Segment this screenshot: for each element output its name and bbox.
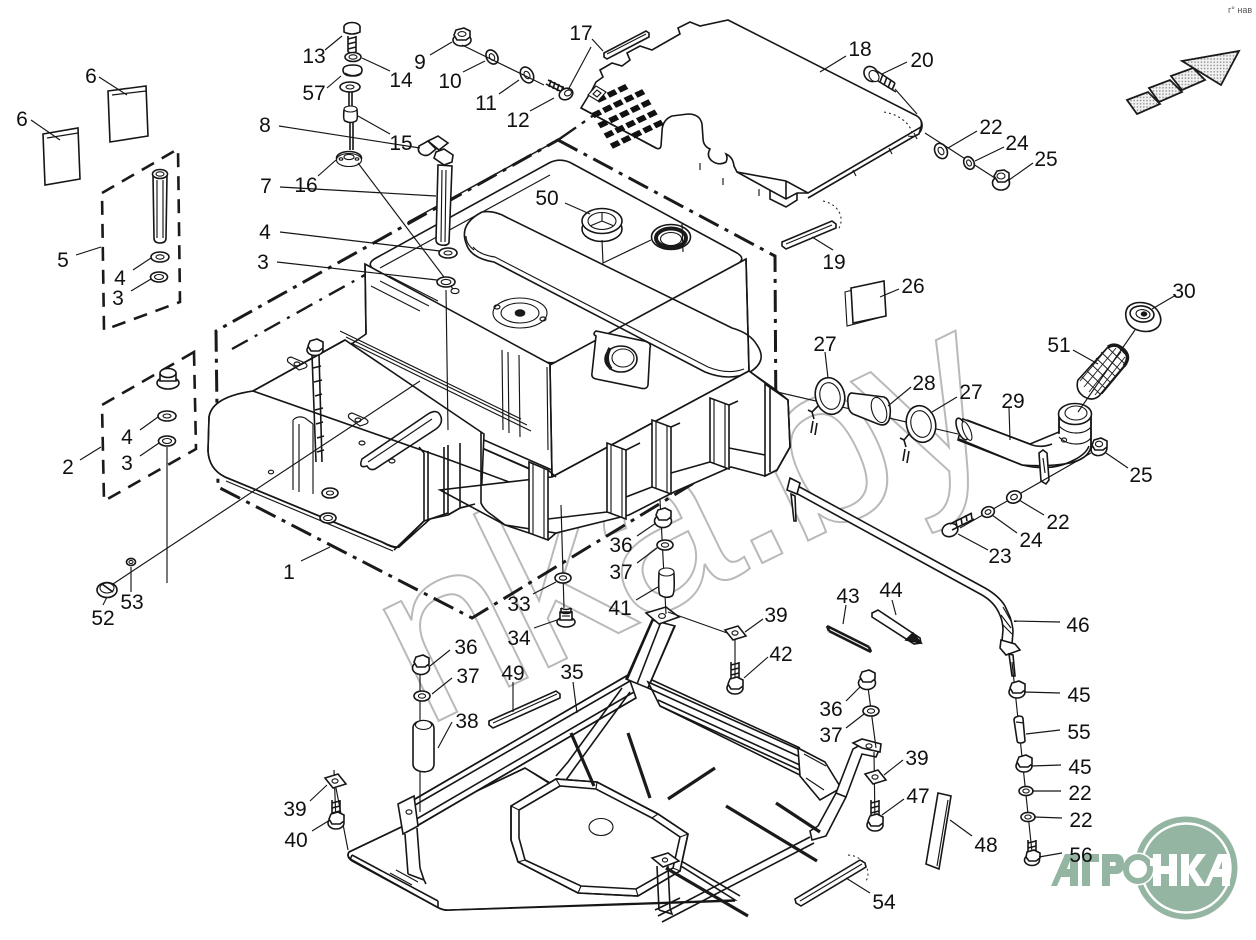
svg-text:9: 9 [414, 51, 426, 74]
svg-text:2: 2 [62, 456, 74, 479]
svg-text:4: 4 [121, 426, 133, 449]
svg-text:6: 6 [16, 108, 28, 131]
svg-text:49: 49 [501, 662, 524, 685]
svg-text:45: 45 [1067, 684, 1090, 707]
svg-text:24: 24 [1005, 132, 1029, 155]
svg-text:29: 29 [1001, 390, 1024, 413]
svg-text:26: 26 [901, 275, 924, 298]
svg-text:22: 22 [1069, 809, 1092, 832]
svg-text:5: 5 [57, 249, 69, 272]
svg-text:36: 36 [454, 636, 477, 659]
svg-text:36: 36 [609, 534, 632, 557]
svg-text:41: 41 [608, 597, 631, 620]
svg-text:35: 35 [560, 661, 583, 684]
svg-text:56: 56 [1069, 844, 1092, 867]
svg-text:25: 25 [1129, 464, 1152, 487]
svg-text:18: 18 [848, 38, 871, 61]
svg-text:1: 1 [283, 561, 295, 584]
svg-text:30: 30 [1172, 280, 1195, 303]
svg-text:15: 15 [389, 132, 412, 155]
svg-text:47: 47 [906, 785, 929, 808]
svg-text:33: 33 [507, 593, 530, 616]
svg-text:22: 22 [1068, 782, 1091, 805]
svg-text:3: 3 [112, 287, 124, 310]
svg-text:16: 16 [294, 174, 317, 197]
svg-text:40: 40 [284, 829, 307, 852]
svg-text:27: 27 [813, 333, 836, 356]
svg-text:7: 7 [260, 175, 272, 198]
svg-text:51: 51 [1047, 334, 1070, 357]
svg-text:27: 27 [959, 381, 982, 404]
svg-text:39: 39 [764, 604, 787, 627]
svg-text:53: 53 [120, 591, 143, 614]
svg-text:25: 25 [1034, 148, 1057, 171]
svg-text:г° нав: г° нав [1228, 5, 1252, 15]
svg-text:55: 55 [1067, 721, 1090, 744]
svg-text:17: 17 [569, 22, 592, 45]
svg-text:39: 39 [905, 747, 928, 770]
svg-text:38: 38 [455, 710, 478, 733]
svg-text:54: 54 [872, 891, 896, 914]
svg-text:13: 13 [302, 45, 325, 68]
svg-text:37: 37 [819, 724, 842, 747]
svg-text:22: 22 [1046, 511, 1069, 534]
svg-text:39: 39 [283, 798, 306, 821]
svg-text:3: 3 [257, 251, 269, 274]
svg-text:50: 50 [535, 187, 558, 210]
svg-text:6: 6 [85, 65, 97, 88]
svg-text:11: 11 [475, 92, 497, 115]
svg-text:10: 10 [438, 70, 461, 93]
svg-text:52: 52 [91, 607, 114, 630]
svg-text:37: 37 [609, 561, 632, 584]
svg-text:57: 57 [302, 82, 325, 105]
svg-text:48: 48 [974, 834, 997, 857]
svg-text:37: 37 [456, 665, 479, 688]
svg-text:45: 45 [1068, 756, 1091, 779]
svg-text:44: 44 [879, 579, 903, 602]
svg-text:42: 42 [769, 643, 792, 666]
svg-text:23: 23 [988, 545, 1011, 568]
svg-text:20: 20 [910, 49, 933, 72]
svg-text:3: 3 [121, 452, 133, 475]
svg-text:14: 14 [389, 69, 413, 92]
svg-text:36: 36 [819, 698, 842, 721]
svg-text:46: 46 [1066, 614, 1089, 637]
svg-text:34: 34 [507, 627, 531, 650]
svg-text:24: 24 [1019, 529, 1043, 552]
svg-text:22: 22 [979, 116, 1002, 139]
svg-text:19: 19 [822, 251, 845, 274]
svg-text:12: 12 [506, 109, 529, 132]
svg-text:4: 4 [259, 221, 271, 244]
svg-text:8: 8 [259, 114, 271, 137]
svg-text:28: 28 [912, 372, 935, 395]
svg-text:43: 43 [836, 585, 859, 608]
